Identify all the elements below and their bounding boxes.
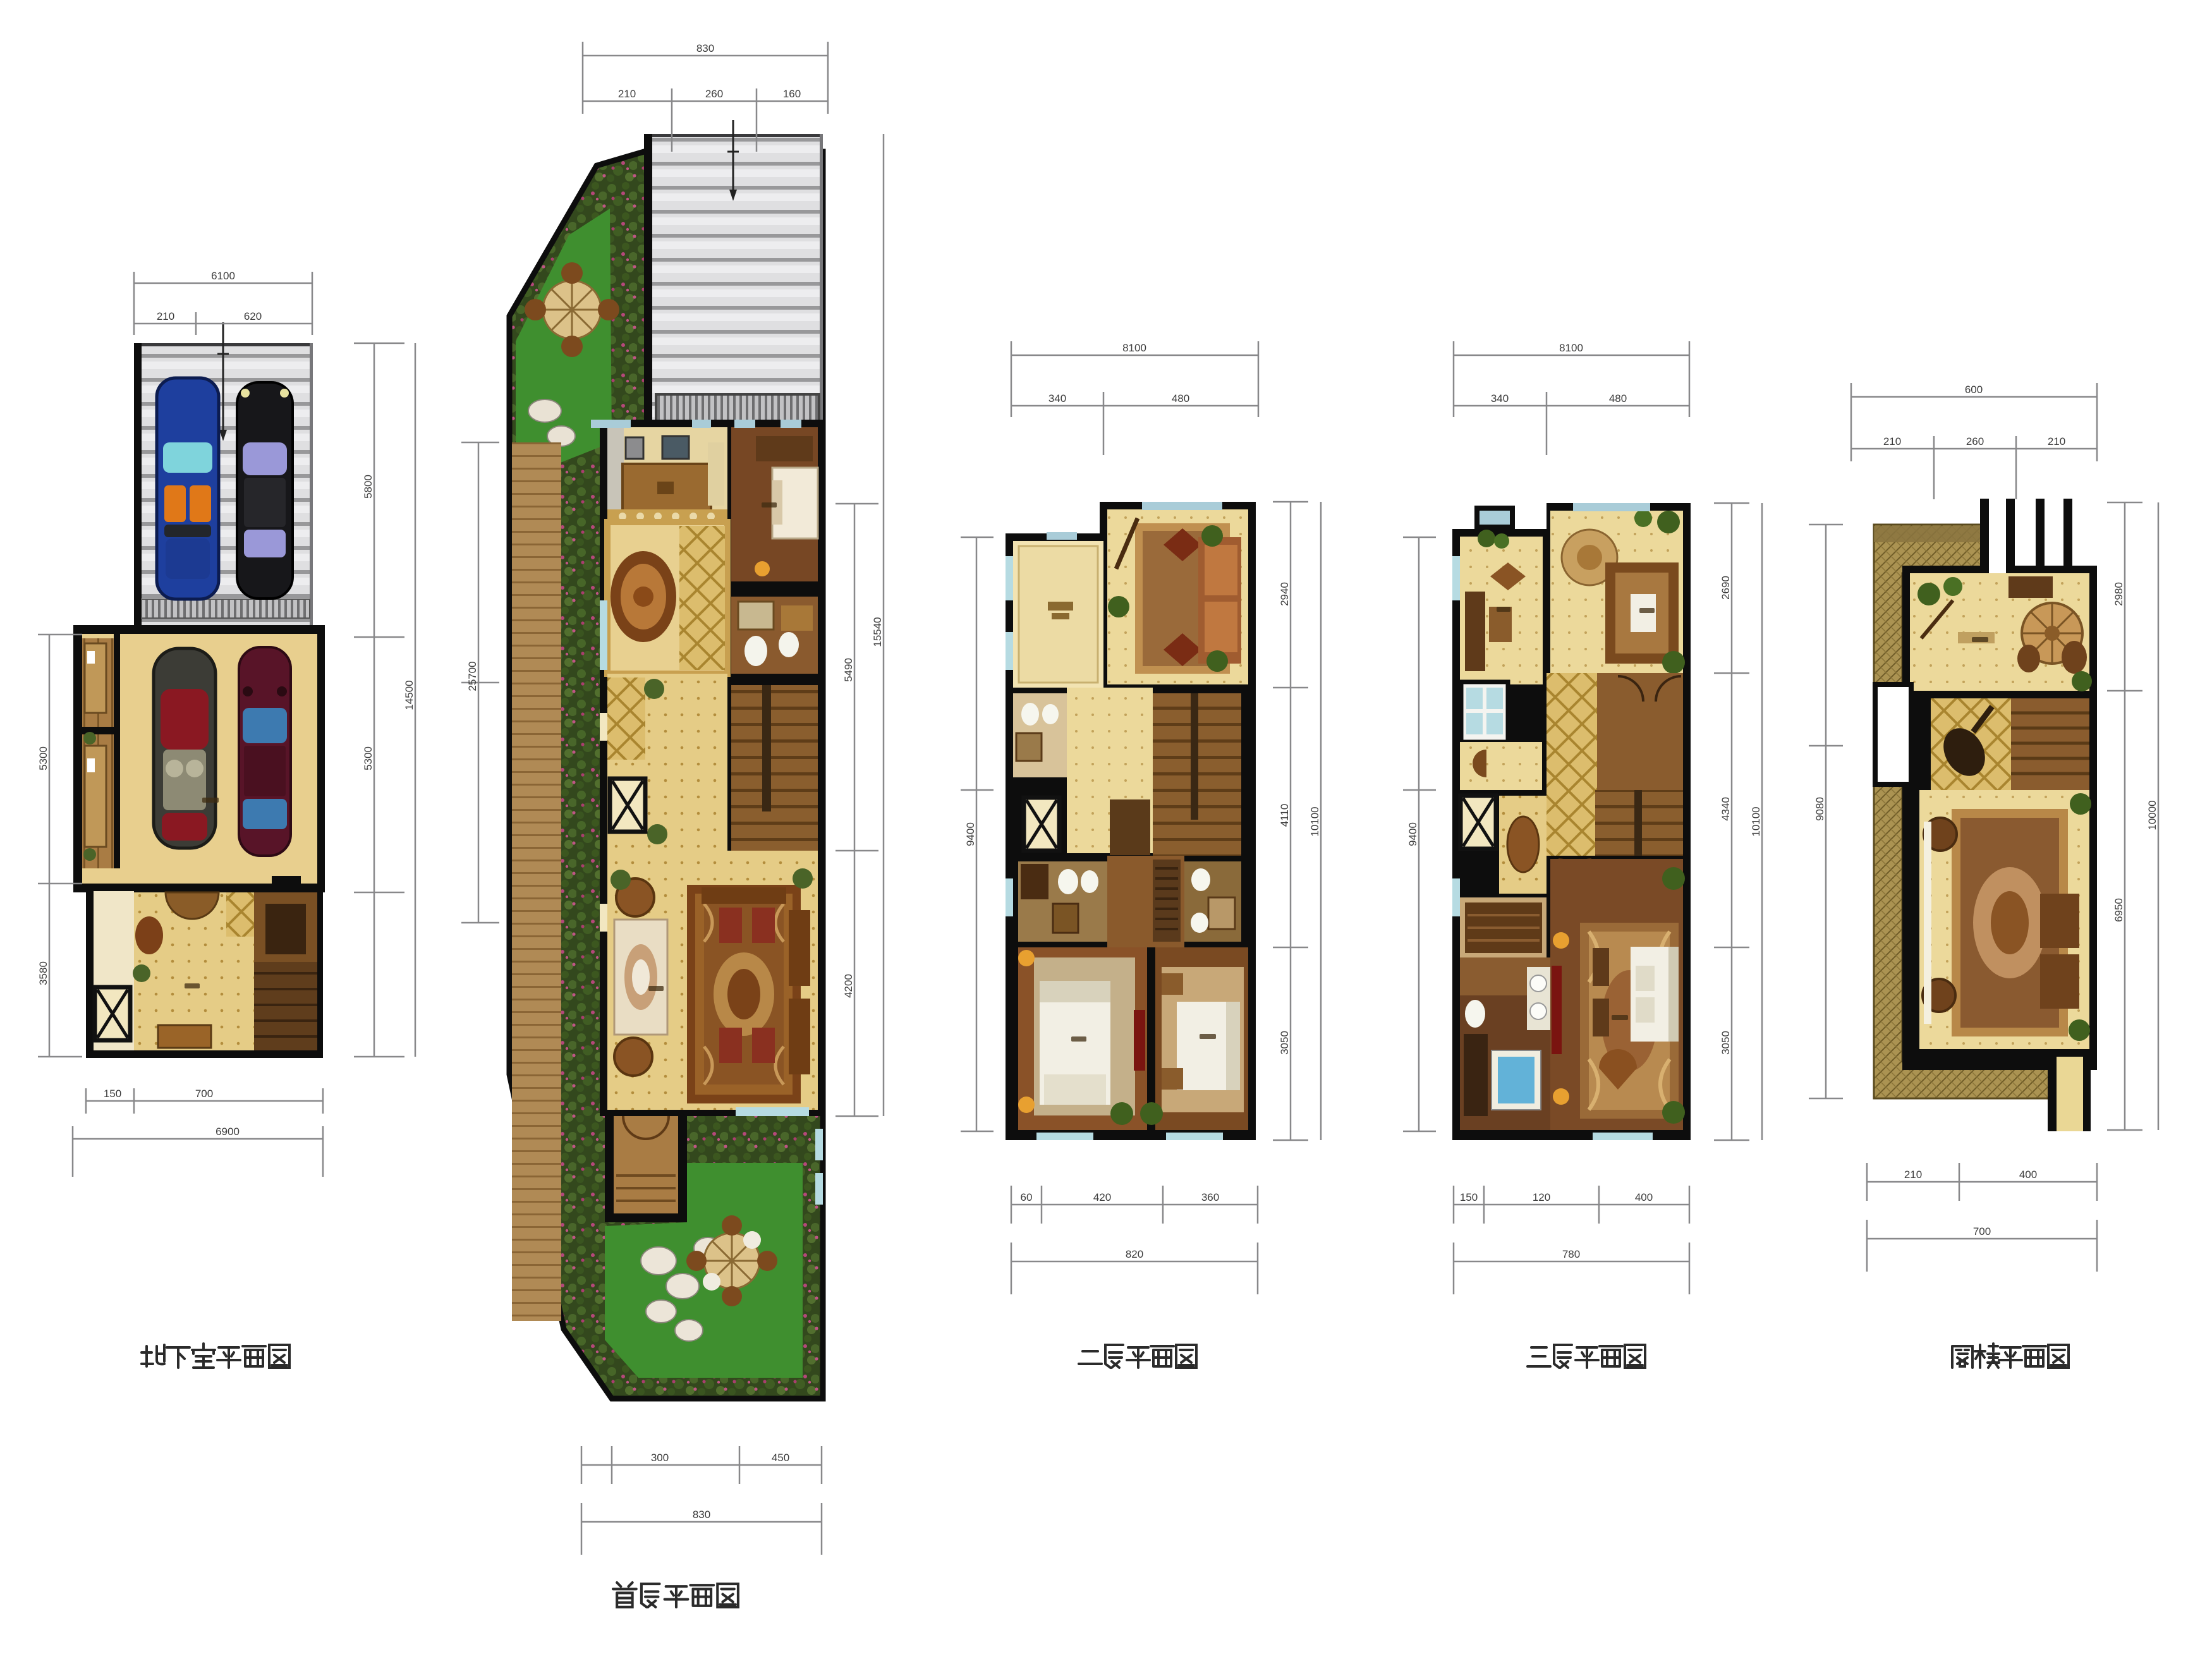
svg-text:700: 700	[1973, 1225, 1991, 1237]
svg-text:10100: 10100	[1750, 806, 1762, 836]
svg-text:6900: 6900	[216, 1126, 240, 1138]
svg-text:450: 450	[772, 1452, 789, 1464]
svg-text:210: 210	[2048, 435, 2065, 447]
svg-text:5800: 5800	[362, 475, 374, 499]
svg-text:830: 830	[693, 1509, 710, 1521]
svg-text:5490: 5490	[842, 658, 854, 682]
svg-text:15540: 15540	[872, 617, 884, 647]
svg-text:2690: 2690	[1720, 576, 1732, 600]
svg-text:8100: 8100	[1559, 342, 1583, 354]
svg-text:9080: 9080	[1814, 797, 1826, 821]
svg-text:480: 480	[1609, 392, 1627, 404]
svg-text:2980: 2980	[2113, 582, 2125, 606]
svg-text:4110: 4110	[1279, 804, 1291, 827]
svg-text:420: 420	[1093, 1191, 1111, 1203]
svg-text:4200: 4200	[842, 974, 854, 998]
svg-text:360: 360	[1201, 1191, 1219, 1203]
svg-text:210: 210	[618, 88, 636, 100]
svg-text:60: 60	[1021, 1191, 1033, 1203]
svg-text:210: 210	[1883, 435, 1901, 447]
svg-text:400: 400	[2019, 1169, 2037, 1181]
svg-text:5300: 5300	[37, 746, 49, 770]
svg-text:260: 260	[1966, 435, 1984, 447]
svg-text:150: 150	[1460, 1191, 1478, 1203]
svg-text:700: 700	[195, 1088, 213, 1100]
svg-text:120: 120	[1533, 1191, 1550, 1203]
svg-text:820: 820	[1126, 1248, 1143, 1260]
svg-text:780: 780	[1562, 1248, 1580, 1260]
svg-text:6950: 6950	[2113, 898, 2125, 922]
svg-text:830: 830	[696, 42, 714, 54]
svg-text:2940: 2940	[1279, 582, 1291, 606]
svg-text:25700: 25700	[466, 661, 478, 691]
svg-text:10000: 10000	[2146, 800, 2158, 830]
svg-text:14500: 14500	[403, 680, 415, 710]
svg-text:210: 210	[1904, 1169, 1922, 1181]
svg-text:3050: 3050	[1279, 1031, 1291, 1055]
svg-text:260: 260	[705, 88, 723, 100]
svg-text:3580: 3580	[37, 961, 49, 985]
svg-text:480: 480	[1172, 392, 1189, 404]
svg-text:9400: 9400	[1407, 822, 1419, 846]
svg-text:340: 340	[1048, 392, 1066, 404]
svg-text:8100: 8100	[1122, 342, 1146, 354]
svg-text:160: 160	[783, 88, 801, 100]
svg-text:600: 600	[1965, 384, 1983, 396]
svg-text:150: 150	[104, 1088, 121, 1100]
svg-text:300: 300	[651, 1452, 669, 1464]
svg-text:10100: 10100	[1309, 806, 1321, 836]
svg-text:400: 400	[1635, 1191, 1653, 1203]
svg-text:6100: 6100	[211, 270, 235, 282]
svg-text:9400: 9400	[964, 822, 976, 846]
svg-text:620: 620	[244, 310, 262, 322]
svg-text:340: 340	[1491, 392, 1509, 404]
svg-text:3050: 3050	[1720, 1031, 1732, 1055]
svg-text:4340: 4340	[1720, 797, 1732, 821]
svg-text:210: 210	[157, 310, 174, 322]
svg-text:5300: 5300	[362, 746, 374, 770]
